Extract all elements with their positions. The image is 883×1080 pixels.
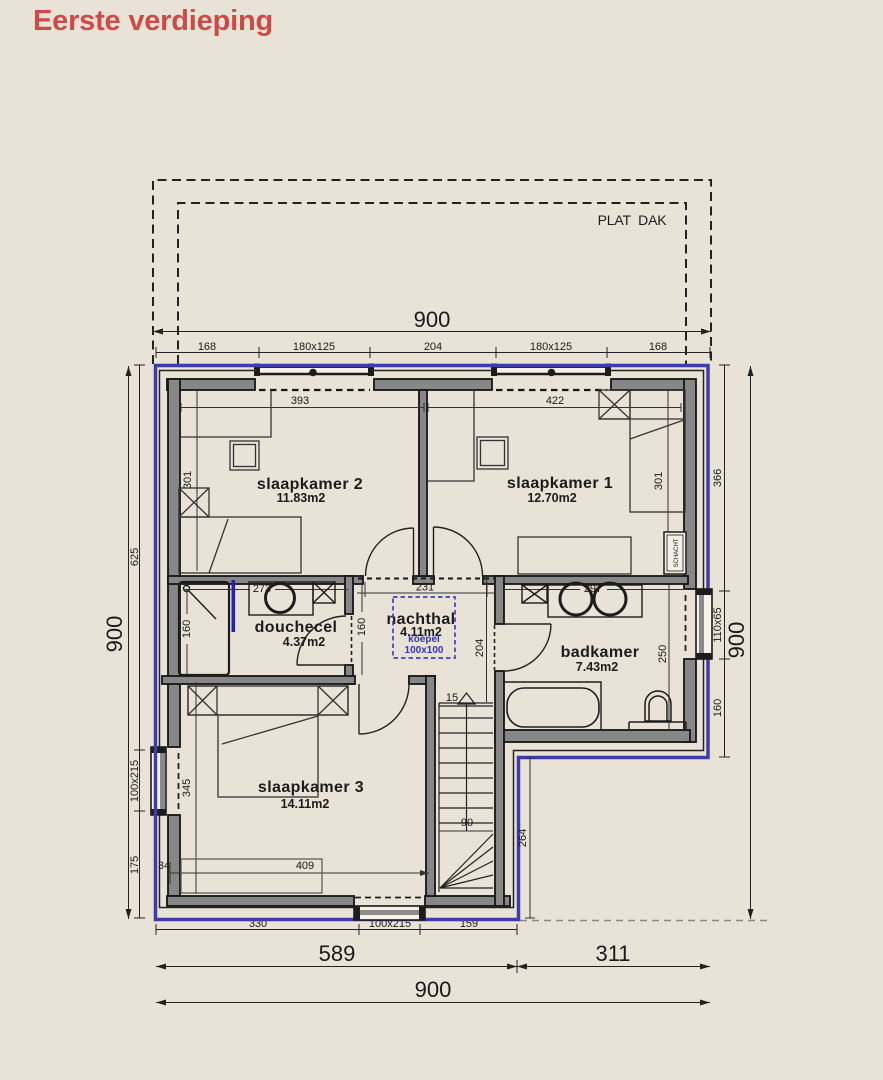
svg-text:180x125: 180x125 bbox=[293, 341, 335, 353]
svg-text:15: 15 bbox=[446, 692, 458, 704]
svg-text:180x125: 180x125 bbox=[530, 341, 572, 353]
svg-text:625: 625 bbox=[129, 548, 141, 566]
svg-text:900: 900 bbox=[415, 977, 452, 1002]
svg-text:900: 900 bbox=[102, 616, 127, 653]
svg-text:175: 175 bbox=[129, 856, 141, 874]
svg-text:12.70m2: 12.70m2 bbox=[527, 491, 576, 505]
svg-text:100x215: 100x215 bbox=[129, 760, 141, 802]
svg-text:409: 409 bbox=[296, 860, 314, 872]
svg-text:Eerste verdieping: Eerste verdieping bbox=[33, 5, 273, 37]
svg-text:koepel: koepel bbox=[408, 634, 440, 645]
svg-text:PLAT DAK: PLAT DAK bbox=[598, 212, 668, 228]
svg-text:badkamer: badkamer bbox=[561, 644, 640, 661]
svg-text:589: 589 bbox=[319, 941, 356, 966]
svg-text:SCHACHT: SCHACHT bbox=[674, 538, 680, 567]
svg-text:393: 393 bbox=[291, 395, 309, 407]
svg-text:90: 90 bbox=[461, 817, 473, 829]
svg-text:110x65: 110x65 bbox=[712, 607, 724, 642]
svg-text:345: 345 bbox=[181, 779, 193, 797]
svg-text:900: 900 bbox=[414, 307, 451, 332]
svg-text:7.43m2: 7.43m2 bbox=[576, 660, 618, 674]
svg-text:204: 204 bbox=[474, 639, 486, 657]
svg-text:311: 311 bbox=[595, 941, 630, 966]
svg-text:100x100: 100x100 bbox=[405, 645, 444, 656]
svg-text:160: 160 bbox=[356, 618, 368, 636]
svg-text:422: 422 bbox=[546, 395, 564, 407]
svg-text:900: 900 bbox=[724, 622, 749, 659]
svg-text:34: 34 bbox=[158, 860, 170, 872]
svg-text:14.11m2: 14.11m2 bbox=[281, 797, 330, 811]
svg-text:168: 168 bbox=[649, 341, 667, 353]
svg-text:slaapkamer 1: slaapkamer 1 bbox=[507, 475, 613, 492]
svg-text:11.83m2: 11.83m2 bbox=[277, 491, 326, 505]
svg-text:231: 231 bbox=[416, 582, 434, 594]
svg-text:slaapkamer 3: slaapkamer 3 bbox=[258, 779, 364, 796]
svg-text:160: 160 bbox=[712, 699, 724, 717]
svg-text:366: 366 bbox=[712, 469, 724, 487]
svg-text:301: 301 bbox=[182, 471, 194, 489]
svg-text:250: 250 bbox=[657, 645, 669, 663]
svg-text:204: 204 bbox=[424, 341, 442, 353]
svg-text:297: 297 bbox=[584, 583, 602, 595]
svg-text:160: 160 bbox=[181, 620, 193, 638]
svg-text:301: 301 bbox=[653, 472, 665, 490]
svg-text:264: 264 bbox=[517, 829, 529, 847]
svg-text:douchecel: douchecel bbox=[255, 619, 338, 636]
svg-text:168: 168 bbox=[198, 341, 216, 353]
svg-text:4.37m2: 4.37m2 bbox=[283, 635, 325, 649]
